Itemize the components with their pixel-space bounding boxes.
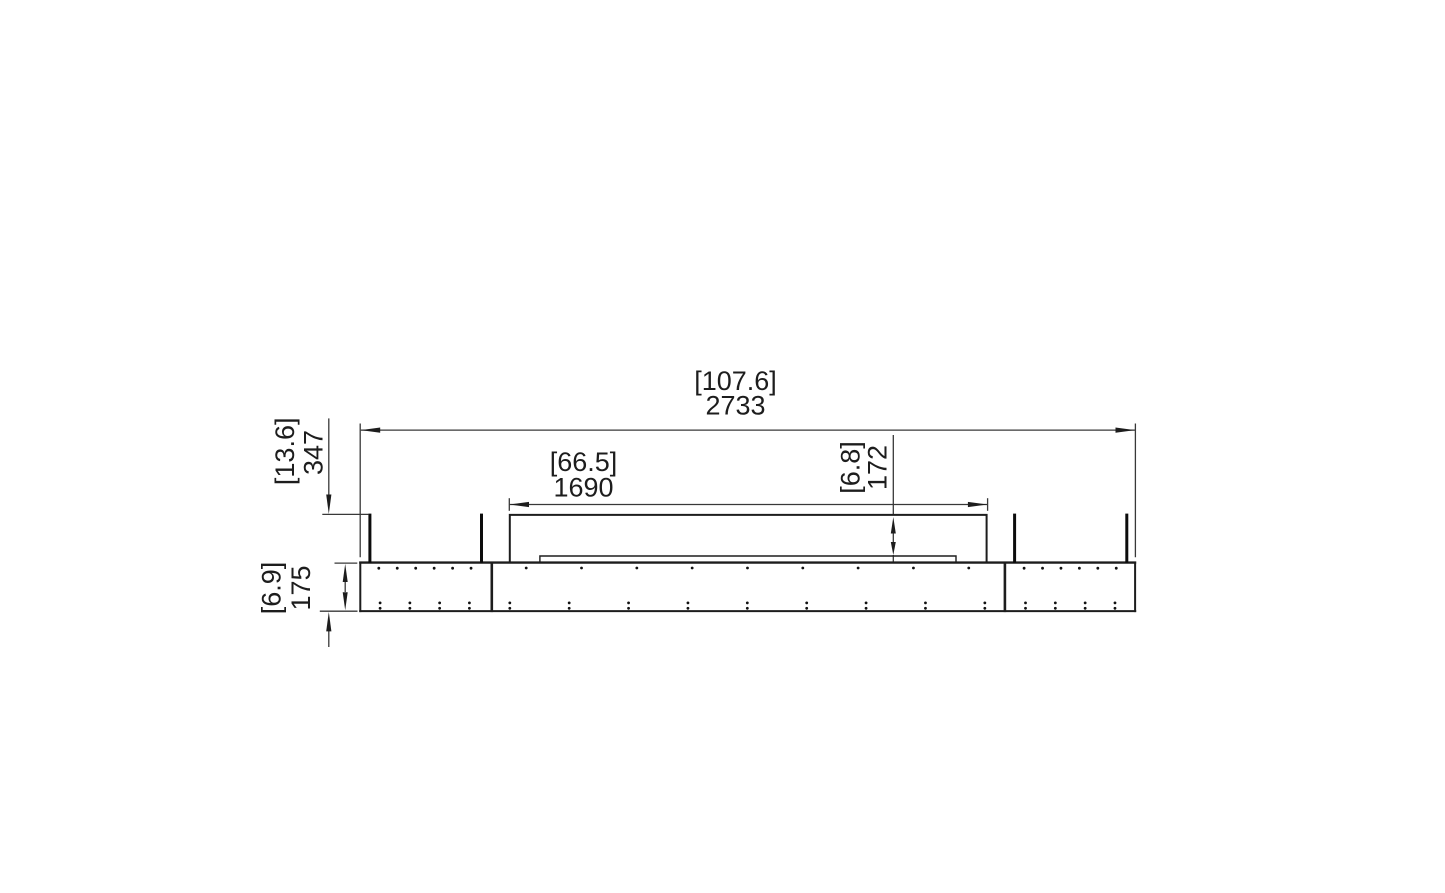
- svg-text:1690: 1690: [553, 472, 613, 502]
- svg-text:[13.6]: [13.6]: [270, 418, 300, 486]
- svg-text:2733: 2733: [705, 391, 765, 421]
- svg-text:[6.9]: [6.9]: [257, 562, 287, 615]
- svg-text:[6.8]: [6.8]: [836, 441, 866, 494]
- svg-text:172: 172: [863, 445, 893, 490]
- svg-text:347: 347: [298, 430, 328, 475]
- svg-text:175: 175: [286, 565, 316, 610]
